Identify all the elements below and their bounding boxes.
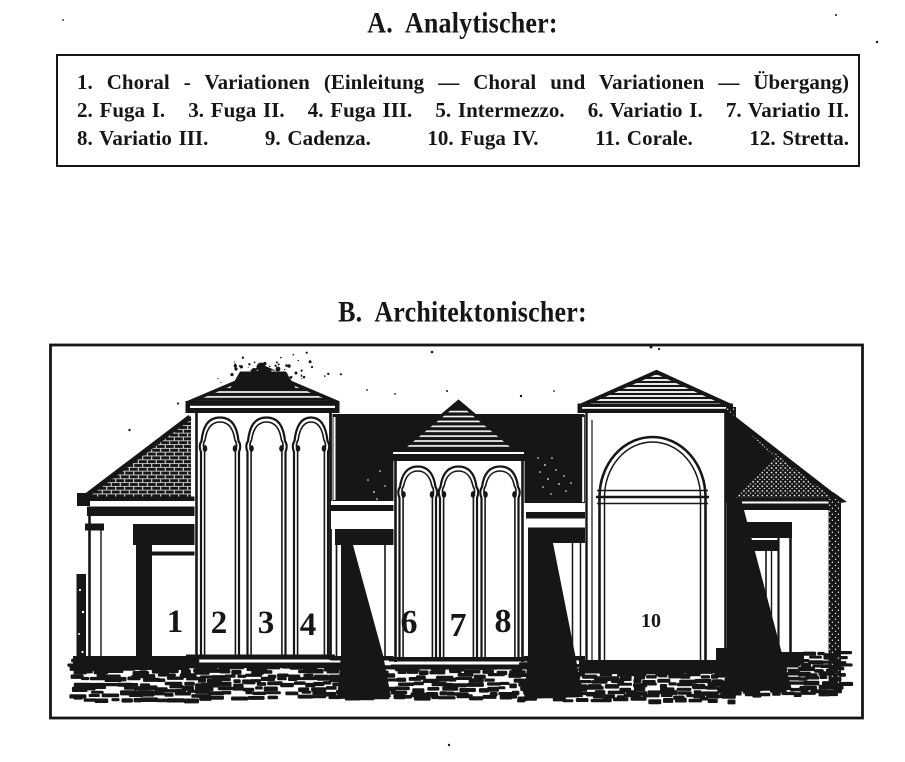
svg-text:7: 7 bbox=[450, 607, 467, 644]
svg-text:1: 1 bbox=[167, 604, 184, 640]
svg-text:10: 10 bbox=[641, 610, 661, 632]
svg-text:3: 3 bbox=[258, 605, 275, 641]
svg-text:4: 4 bbox=[300, 607, 317, 643]
svg-text:8: 8 bbox=[495, 603, 512, 640]
svg-text:6: 6 bbox=[401, 604, 418, 641]
svg-text:2: 2 bbox=[211, 605, 228, 641]
